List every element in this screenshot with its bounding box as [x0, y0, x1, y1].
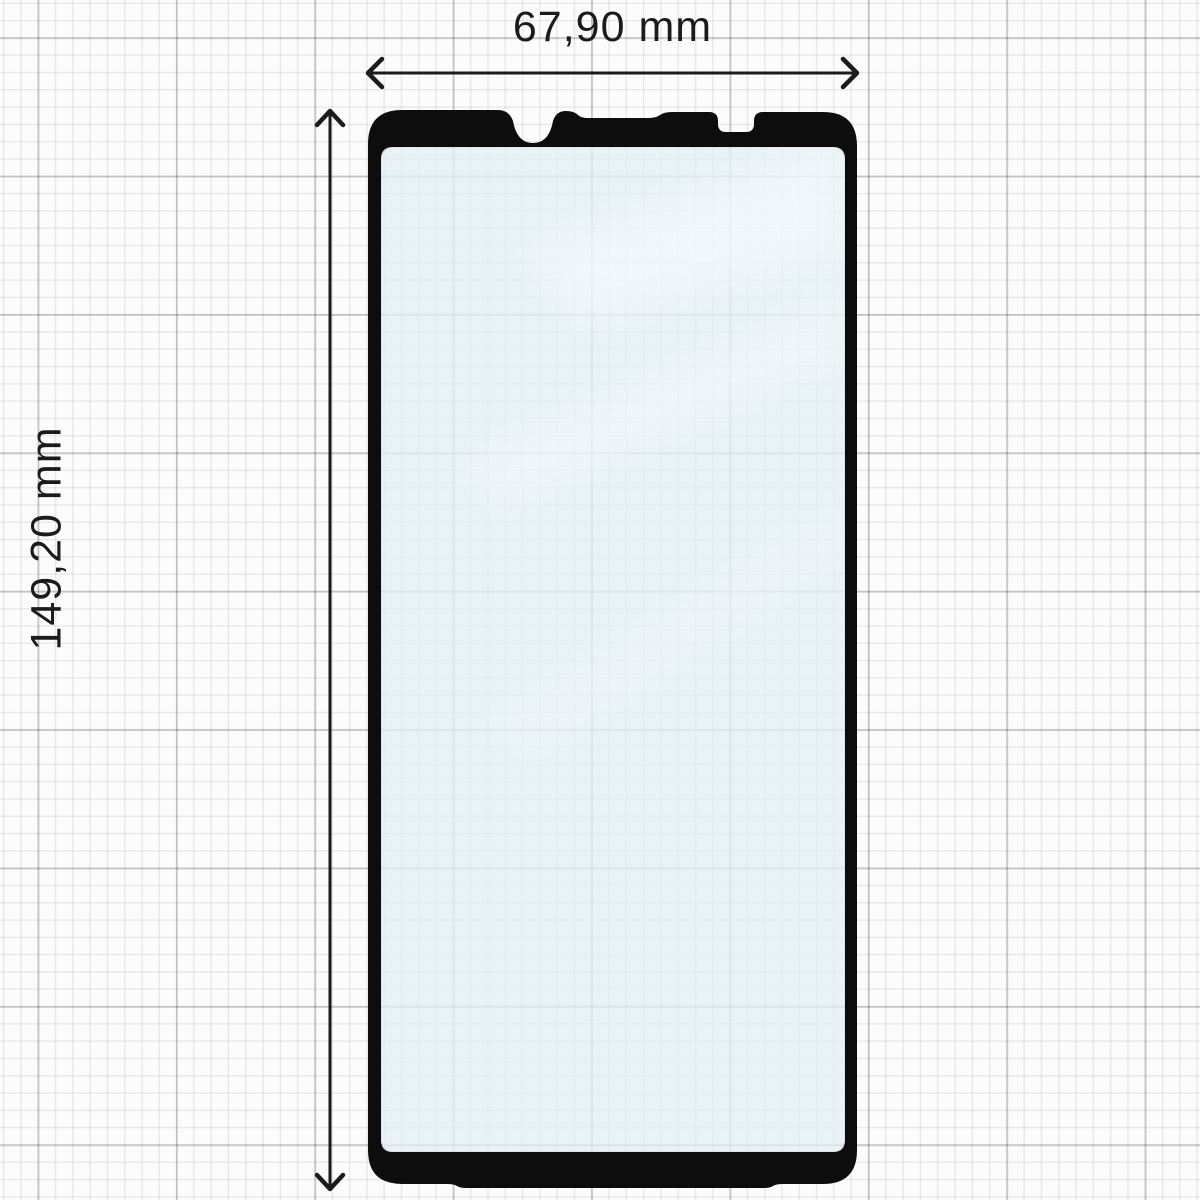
vertical-dimension-arrow	[317, 111, 343, 1189]
width-dimension-label: 67,90 mm	[368, 3, 857, 52]
screen-protector-diagram	[0, 0, 1200, 1200]
horizontal-dimension-arrow	[368, 59, 857, 87]
height-dimension-label: 149,20 mm	[23, 426, 72, 650]
